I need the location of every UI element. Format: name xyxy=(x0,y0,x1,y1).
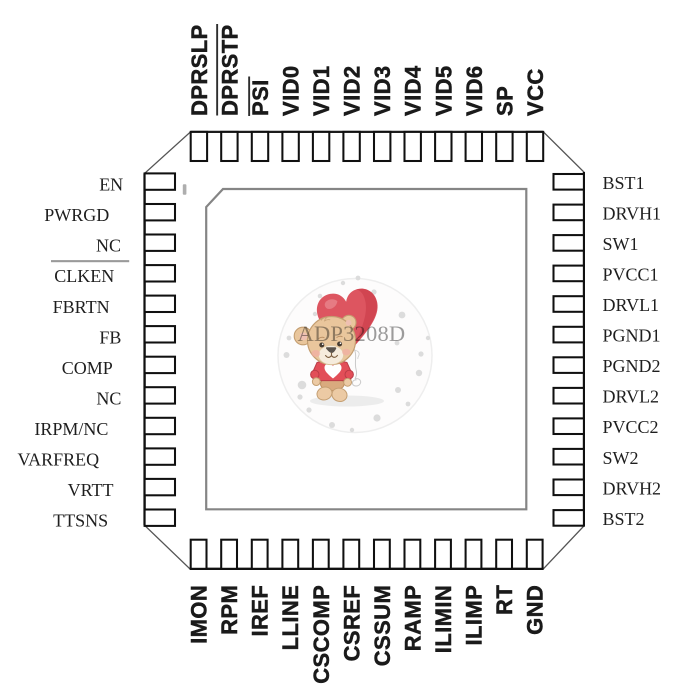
svg-text:GND: GND xyxy=(523,585,548,635)
svg-text:VCC: VCC xyxy=(523,68,548,116)
svg-text:VID3: VID3 xyxy=(370,65,395,116)
svg-text:BST1: BST1 xyxy=(603,173,645,193)
svg-text:TTSNS: TTSNS xyxy=(53,511,108,531)
svg-text:VRTT: VRTT xyxy=(68,480,114,500)
svg-text:VID5: VID5 xyxy=(431,65,456,116)
svg-text:SP: SP xyxy=(492,86,517,116)
svg-text:CSREF: CSREF xyxy=(339,585,364,662)
svg-text:ILIMIN: ILIMIN xyxy=(431,585,456,653)
svg-text:NC: NC xyxy=(96,236,121,256)
svg-text:VID0: VID0 xyxy=(279,65,304,116)
svg-text:VID4: VID4 xyxy=(401,65,426,116)
svg-text:NC: NC xyxy=(96,388,121,408)
svg-text:LLINE: LLINE xyxy=(278,585,303,651)
svg-text:COMP: COMP xyxy=(62,358,113,378)
svg-text:IMON: IMON xyxy=(187,585,212,644)
svg-text:DPRSTP: DPRSTP xyxy=(217,24,242,116)
svg-text:CSSUM: CSSUM xyxy=(370,585,395,666)
svg-text:IRPM/NC: IRPM/NC xyxy=(34,419,108,439)
svg-text:DRVH2: DRVH2 xyxy=(603,478,662,498)
svg-text:FB: FB xyxy=(99,327,121,347)
svg-text:VID6: VID6 xyxy=(462,65,487,116)
svg-text:PGND2: PGND2 xyxy=(603,356,661,376)
svg-text:BST2: BST2 xyxy=(603,509,645,529)
svg-text:RT: RT xyxy=(492,585,517,615)
svg-text:DPRSLP: DPRSLP xyxy=(187,24,212,116)
svg-text:ADP3208D: ADP3208D xyxy=(298,321,406,346)
svg-text:VID2: VID2 xyxy=(340,65,365,116)
svg-text:PSI: PSI xyxy=(248,79,273,116)
svg-text:DRVL2: DRVL2 xyxy=(603,387,660,407)
svg-text:VID1: VID1 xyxy=(309,65,334,116)
svg-text:EN: EN xyxy=(99,175,123,195)
svg-text:VARFREQ: VARFREQ xyxy=(17,450,99,470)
svg-text:FBRTN: FBRTN xyxy=(53,297,110,317)
svg-text:PVCC2: PVCC2 xyxy=(603,417,659,437)
svg-text:PGND1: PGND1 xyxy=(603,326,661,346)
svg-text:DRVL1: DRVL1 xyxy=(603,295,660,315)
svg-text:CSCOMP: CSCOMP xyxy=(309,585,334,684)
svg-text:IREF: IREF xyxy=(248,585,273,637)
svg-text:SW1: SW1 xyxy=(603,234,639,254)
svg-text:CLKEN: CLKEN xyxy=(54,266,114,286)
svg-text:RPM: RPM xyxy=(217,585,242,635)
svg-text:DRVH1: DRVH1 xyxy=(603,203,662,223)
svg-text:RAMP: RAMP xyxy=(400,585,425,651)
svg-text:PWRGD: PWRGD xyxy=(44,205,109,225)
svg-text:ILIMP: ILIMP xyxy=(462,585,487,646)
svg-text:PVCC1: PVCC1 xyxy=(603,264,659,284)
svg-text:SW2: SW2 xyxy=(603,448,639,468)
